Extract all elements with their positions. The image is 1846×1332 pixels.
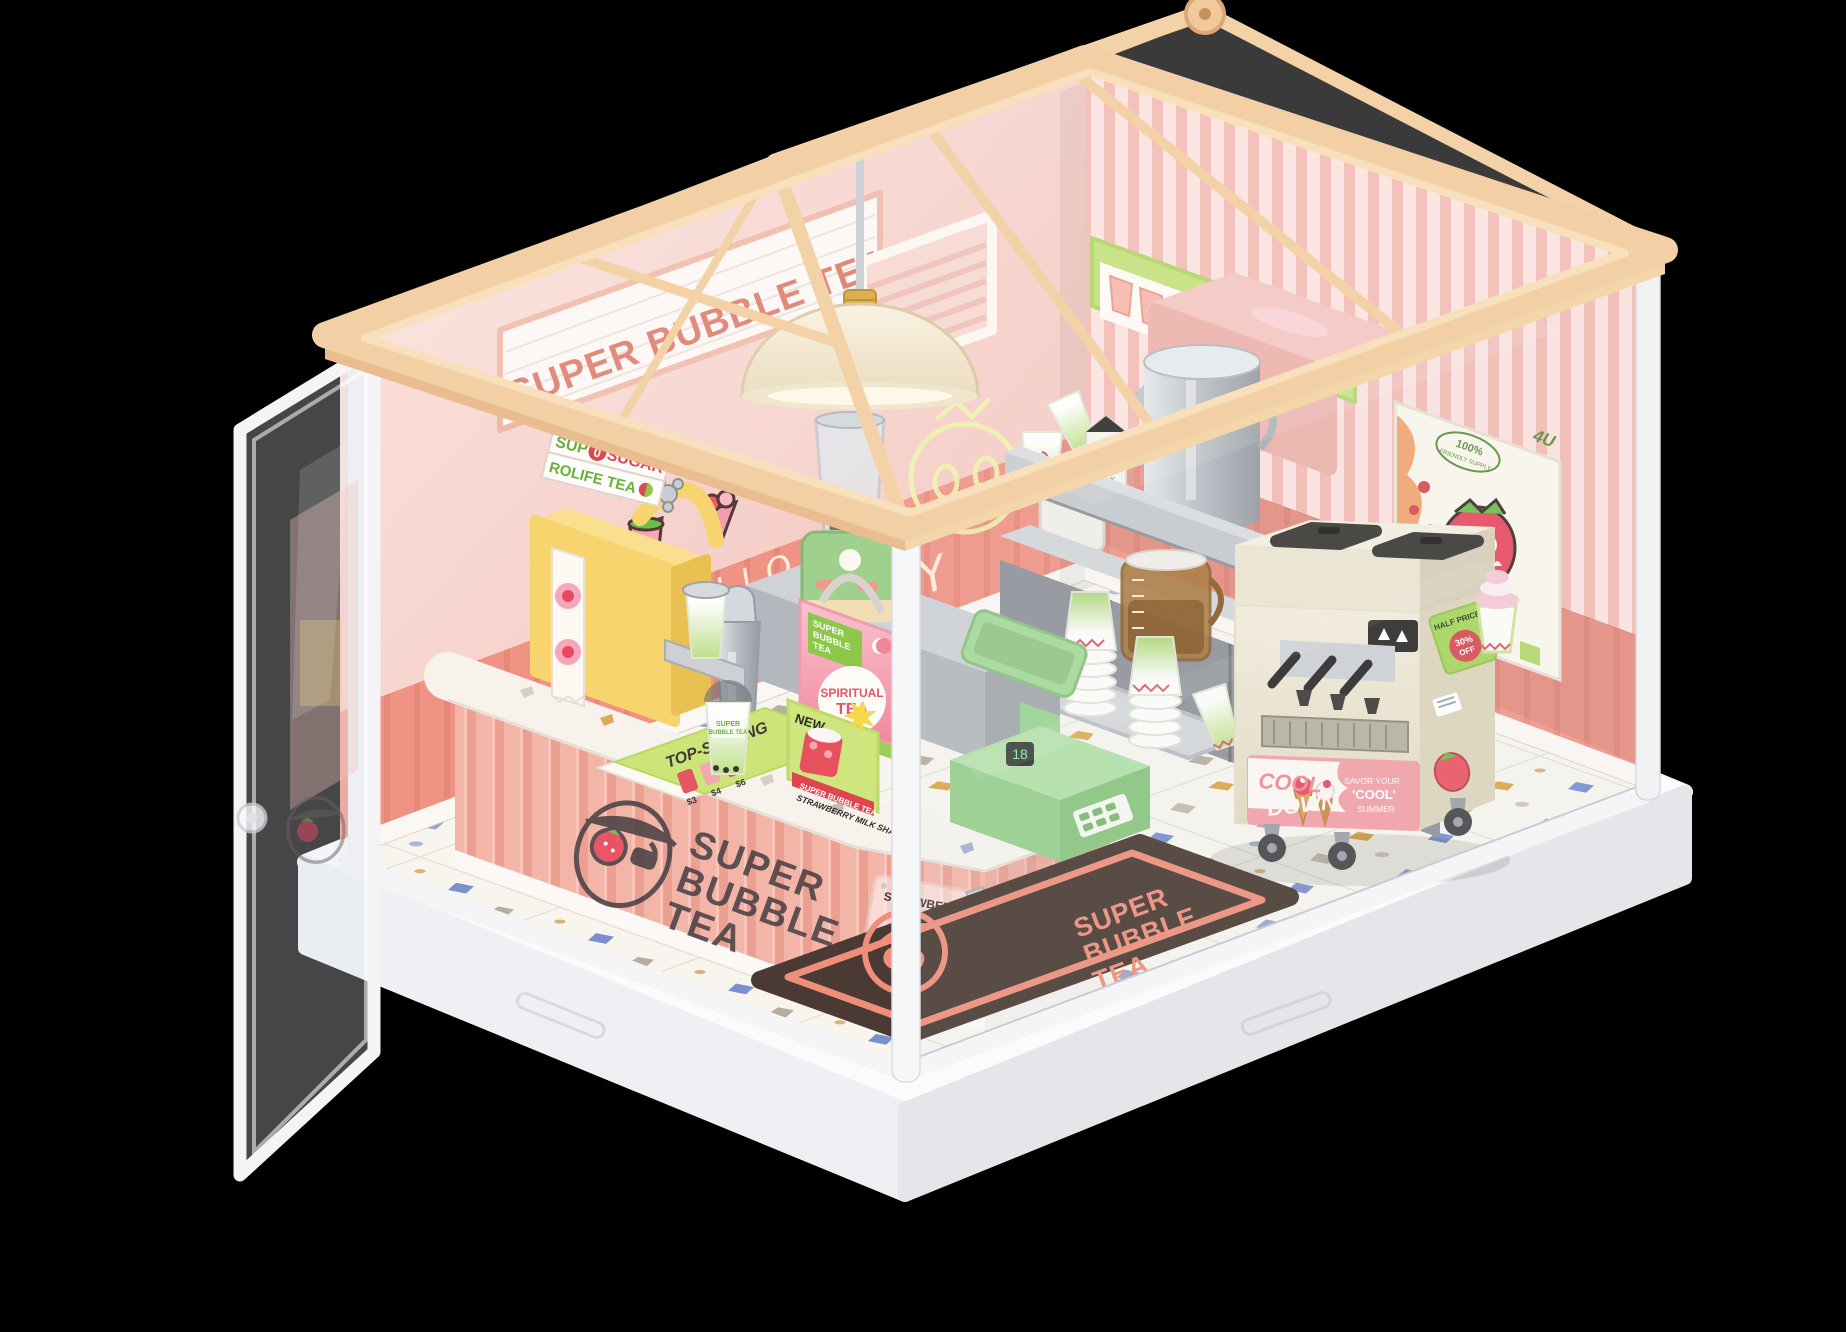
door-knob xyxy=(238,804,266,832)
svg-text:SUPER: SUPER xyxy=(716,721,740,728)
bubble-tea-cup: SUPER BUBBLE TEA xyxy=(704,680,752,774)
corner-post xyxy=(892,508,920,1082)
svg-text:SPIRITUAL: SPIRITUAL xyxy=(820,686,883,700)
miniature-bubble-tea-shop-photo: SUPER BUBBLE TEA HELLO STRAWBERRY xyxy=(0,0,1846,1332)
label-tape xyxy=(552,548,584,706)
svg-text:BUBBLE TEA: BUBBLE TEA xyxy=(709,730,748,736)
roof-hub xyxy=(1186,0,1224,33)
door xyxy=(238,348,374,1175)
right-post xyxy=(1636,240,1660,800)
scene: SUPER BUBBLE TEA HELLO STRAWBERRY xyxy=(0,0,1846,1332)
